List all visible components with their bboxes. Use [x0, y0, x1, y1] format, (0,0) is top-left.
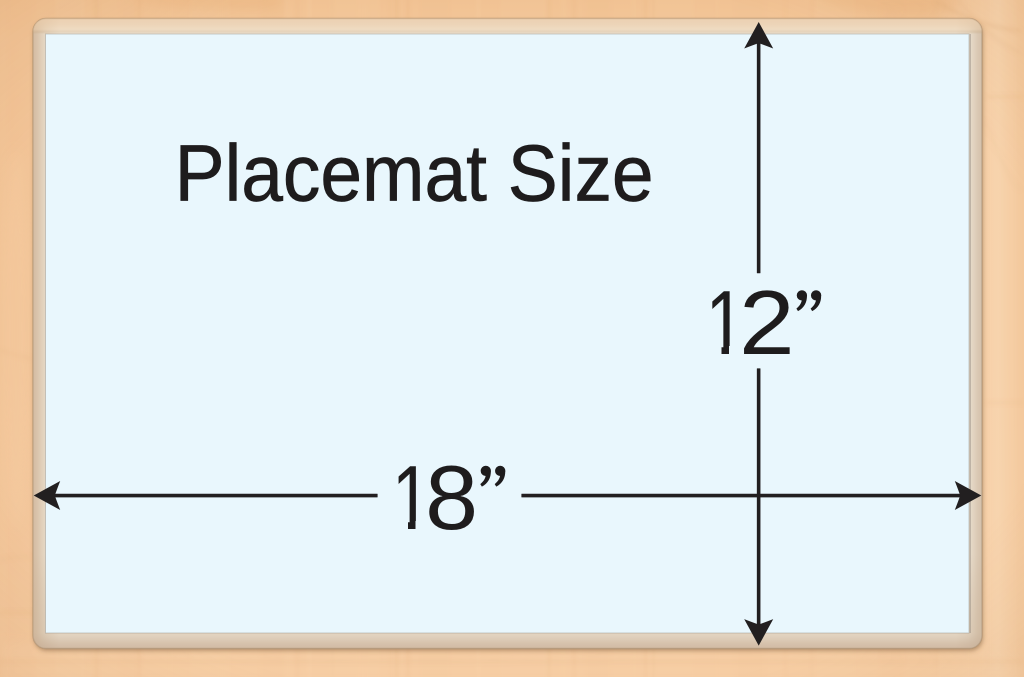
svg-text:Placemat Size: Placemat Size: [175, 129, 654, 218]
svg-text:2: 2: [739, 273, 795, 374]
svg-text:8: 8: [425, 448, 478, 549]
